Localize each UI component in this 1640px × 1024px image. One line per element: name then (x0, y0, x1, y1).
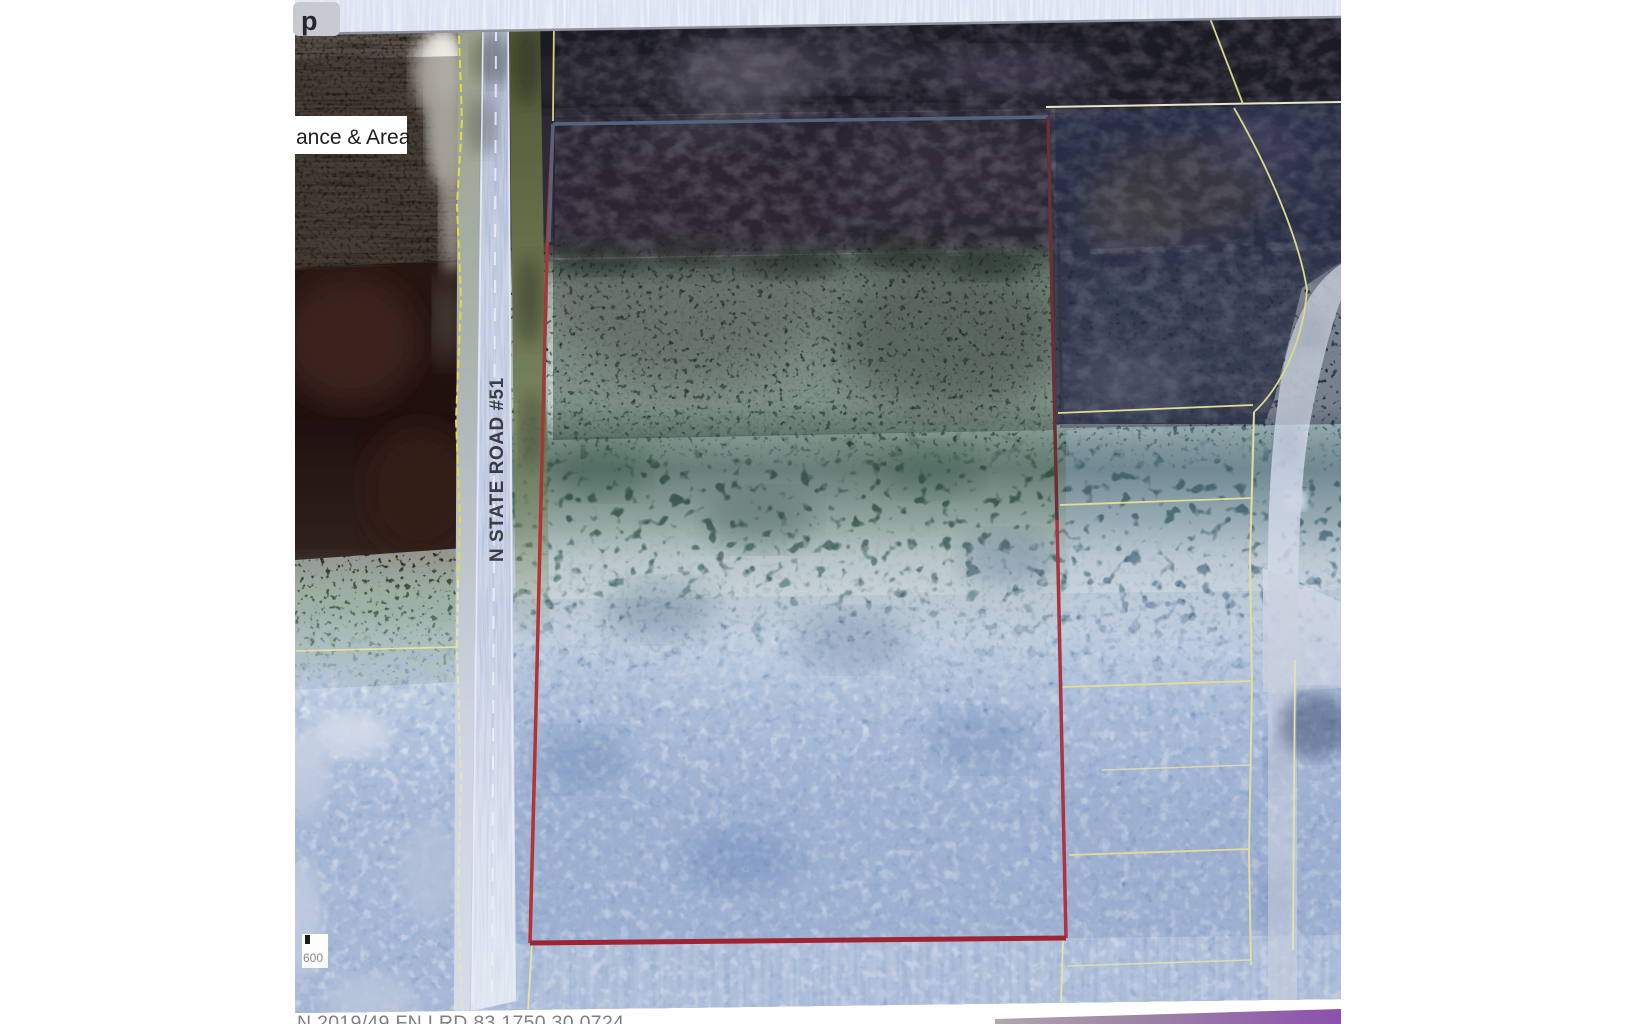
svg-text:p: p (301, 6, 318, 36)
svg-text:600: 600 (303, 951, 323, 965)
svg-text:N STATE ROAD #51: N STATE ROAD #51 (487, 377, 508, 562)
svg-text:ance & Area: ance & Area (296, 126, 411, 149)
svg-text:N 2019/49 FN LRD 83.1750 30: N 2019/49 FN LRD 83.1750 30.0724 (297, 1012, 624, 1024)
